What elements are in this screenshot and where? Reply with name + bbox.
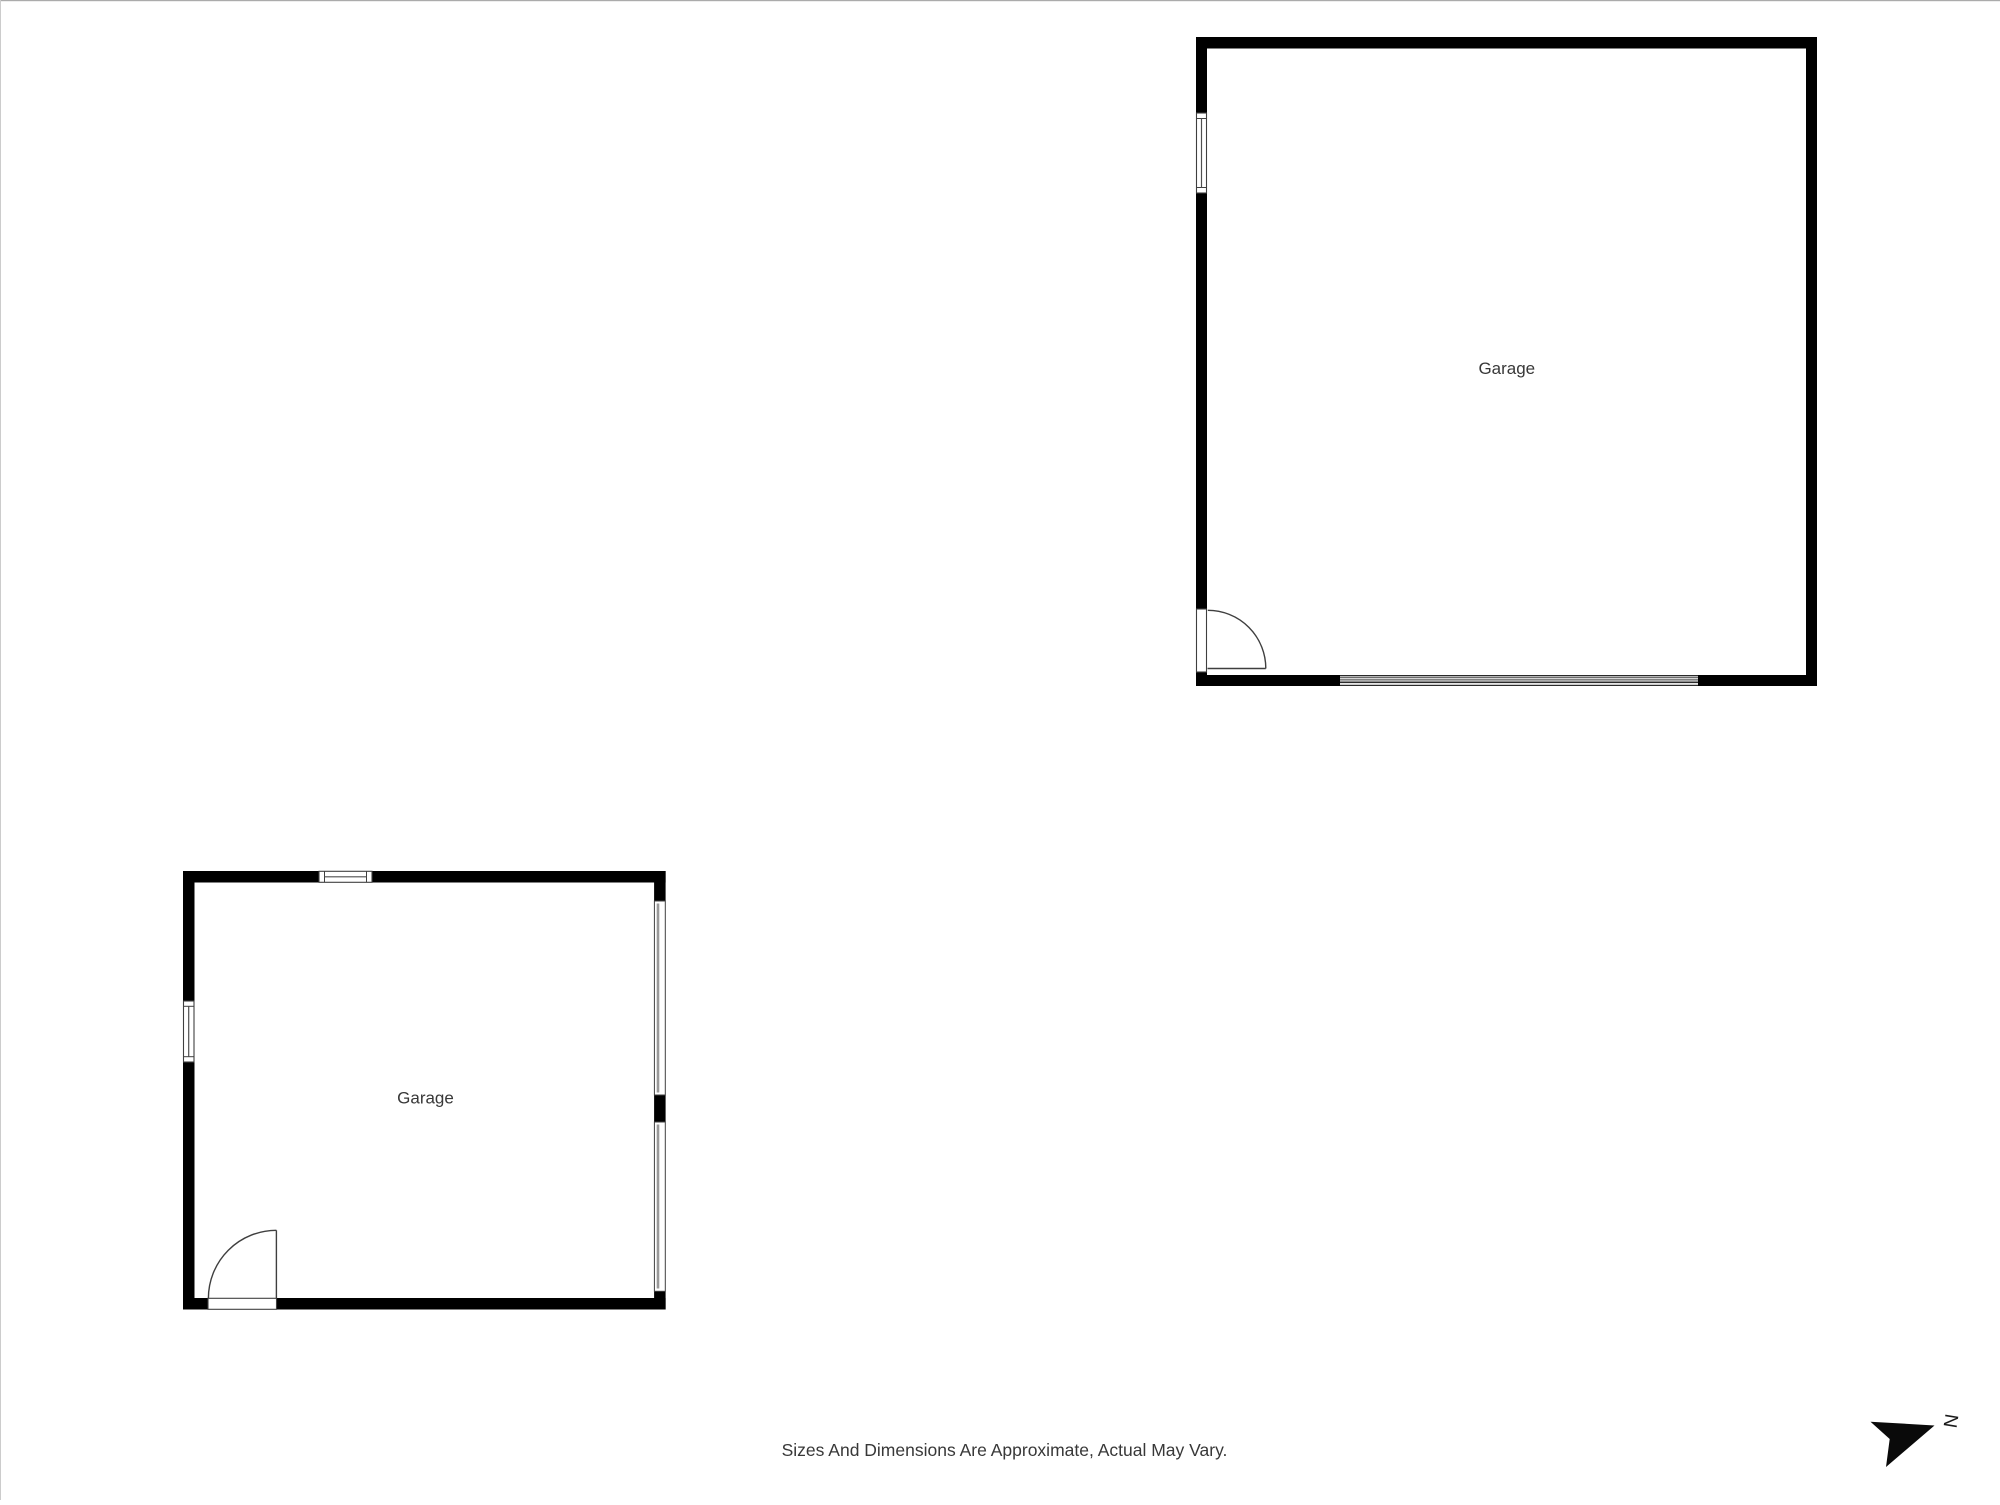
svg-text:Sizes And Dimensions Are Appro: Sizes And Dimensions Are Approximate, Ac…: [782, 1440, 1228, 1460]
svg-text:Garage: Garage: [1478, 359, 1535, 378]
svg-text:Garage: Garage: [397, 1089, 454, 1108]
